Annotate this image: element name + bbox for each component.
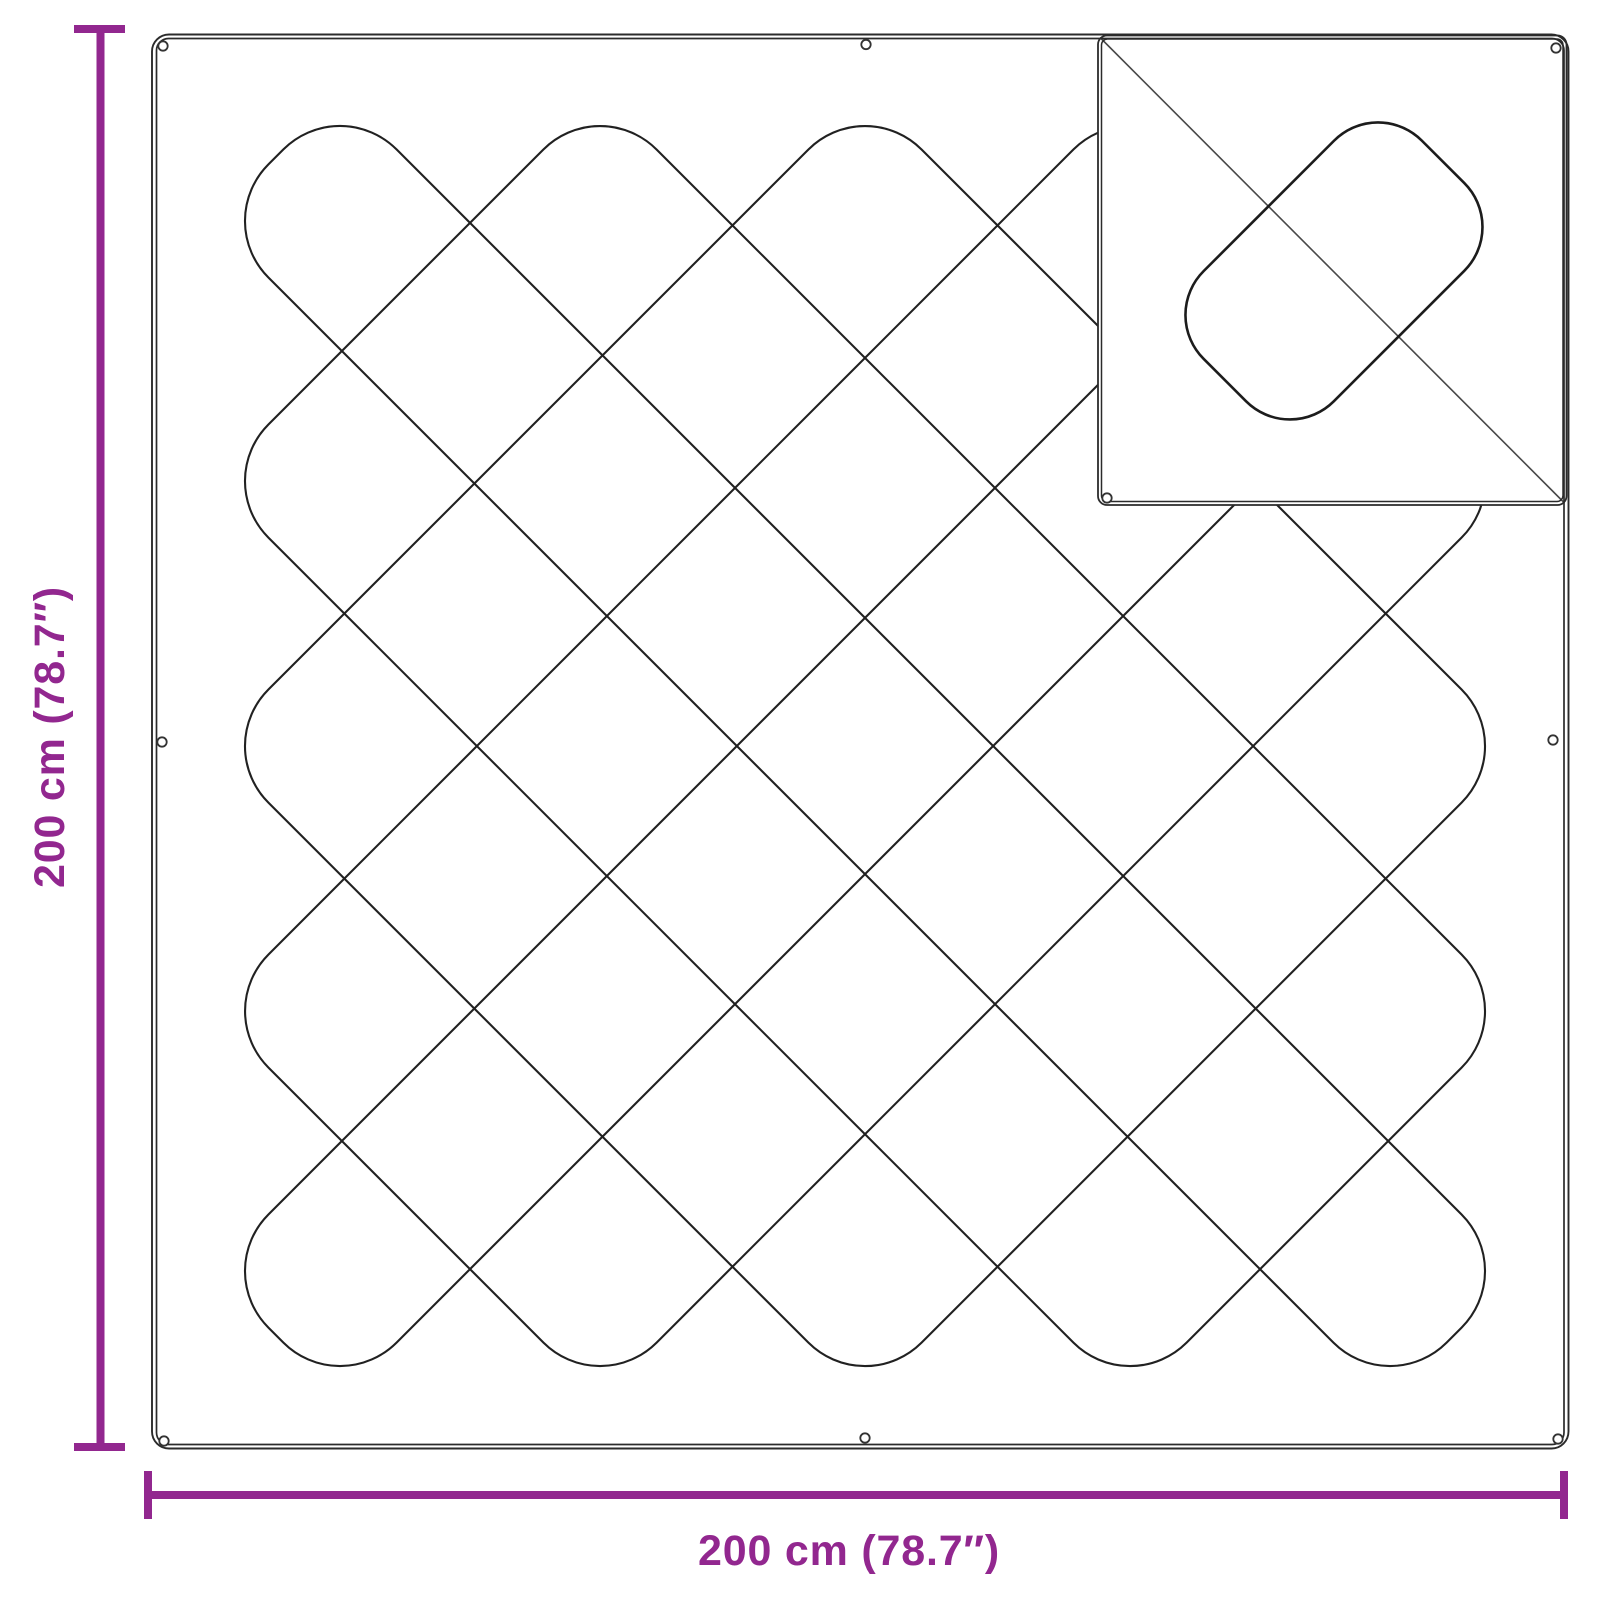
svg-text:200 cm (78.7″): 200 cm (78.7″) [698, 1527, 1000, 1575]
svg-text:200 cm (78.7″): 200 cm (78.7″) [26, 586, 74, 888]
